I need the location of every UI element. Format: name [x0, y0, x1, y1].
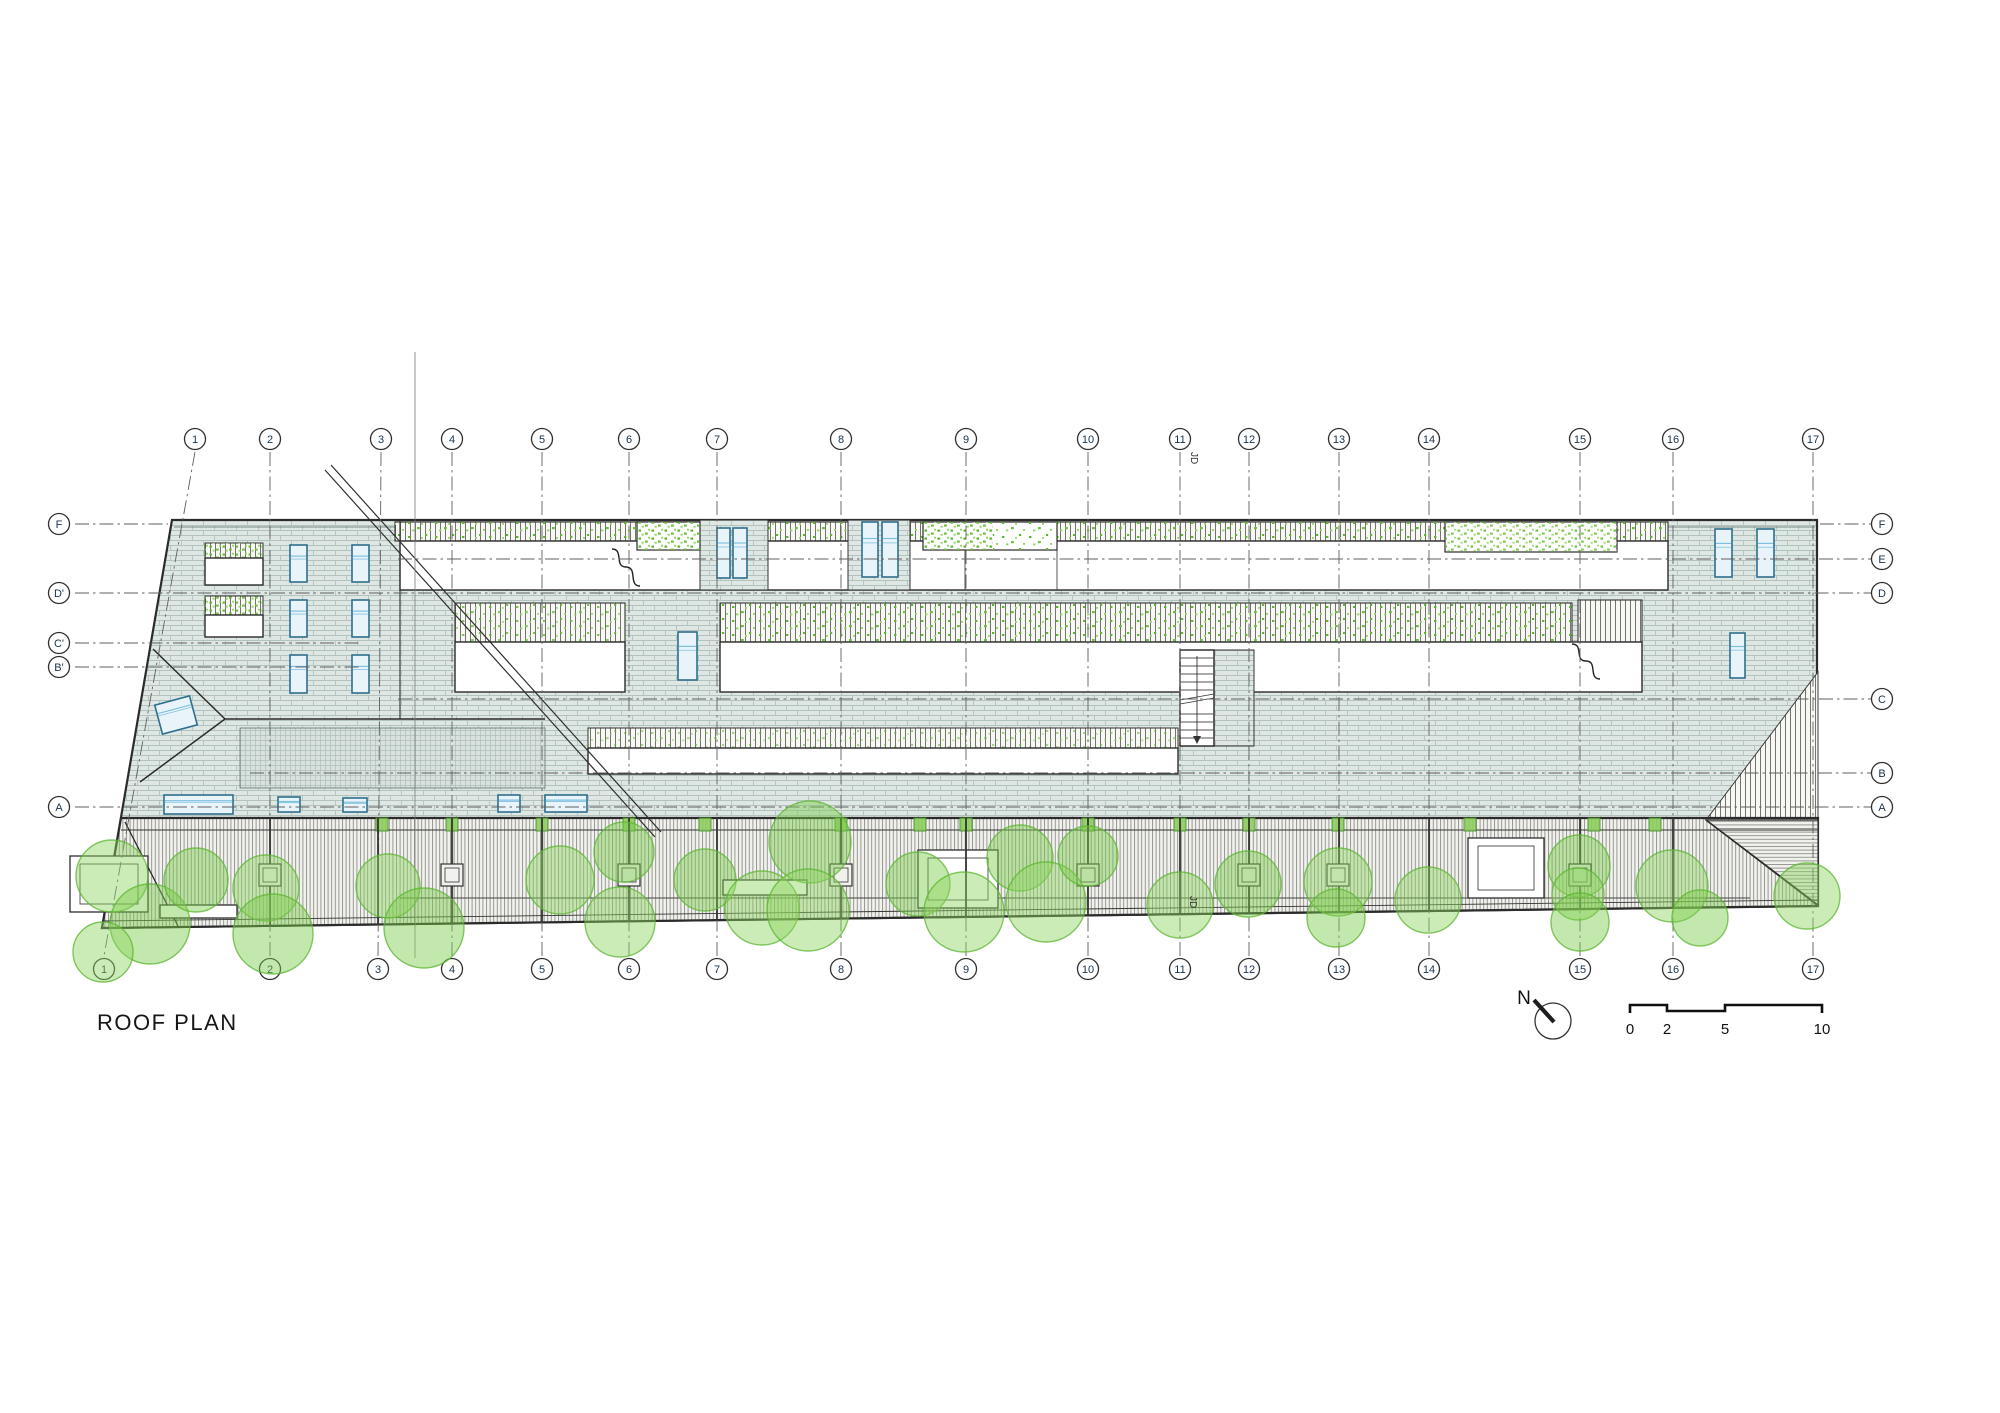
skylight-frame [498, 795, 520, 812]
grid-bubble-right-E-label: E [1878, 554, 1885, 566]
skylight [278, 797, 300, 812]
grid-bubble-left-F-label: F [56, 519, 63, 531]
grid-bubble-bottom-14-label: 14 [1423, 964, 1435, 976]
grid-bubble-left-D'-label: D' [54, 588, 64, 600]
grid-bubble-bottom-17-label: 17 [1807, 964, 1819, 976]
skylight-frame [352, 545, 369, 582]
grid-bubble-top-3-label: 3 [378, 434, 384, 446]
tree [1395, 867, 1461, 933]
skylight-frame [343, 798, 367, 812]
grid-bubble-top-15-label: 15 [1574, 434, 1586, 446]
grid-bubble-bottom-6-label: 6 [626, 964, 632, 976]
skylight-frame [352, 655, 369, 693]
skylight [733, 528, 747, 578]
skylight [352, 545, 369, 582]
tree [1307, 889, 1365, 947]
tree [526, 846, 594, 914]
grid-bubble-top-4-label: 4 [449, 434, 455, 446]
grid-bubble-right-A-label: A [1878, 802, 1886, 814]
skylight [678, 632, 697, 680]
grid-bubble-right-F-label: F [1879, 519, 1886, 531]
skylight-frame [717, 528, 730, 578]
north-arrow: N [1517, 988, 1571, 1039]
skylight [343, 798, 367, 812]
scale-bar: 02510 [1626, 1005, 1831, 1038]
skylight [352, 600, 369, 637]
skylight-frame [1715, 529, 1732, 577]
grid-bubble-bottom-4-label: 4 [449, 964, 455, 976]
skylight-frame [290, 545, 307, 582]
tree [164, 848, 228, 912]
grid-bubble-bottom-7-label: 7 [714, 964, 720, 976]
deck-planter-pad [914, 818, 926, 831]
grid-bubble-top-17-label: 17 [1807, 434, 1819, 446]
tree [1215, 851, 1281, 917]
deck-planter-pad [699, 818, 711, 831]
roof-plan-sheet: FFED'DC'B'CBAA11223344556677889910101111… [0, 0, 2000, 1413]
tree [1058, 826, 1118, 886]
grid-bubble-bottom-10-label: 10 [1082, 964, 1094, 976]
scale-label-2: 2 [1663, 1021, 1671, 1038]
stair [1180, 650, 1254, 746]
roof-plan-drawing: FFED'DC'B'CBAA11223344556677889910101111… [0, 0, 2000, 1413]
roof-patch [848, 520, 910, 590]
skylight [545, 795, 587, 812]
deck-post-box [441, 864, 463, 886]
grid-bubble-bottom-8-label: 8 [838, 964, 844, 976]
terrace-crosshatch [240, 728, 545, 788]
grid-bubble-bottom-3-label: 3 [375, 964, 381, 976]
skylight-frame [862, 522, 878, 577]
skylight-frame [352, 600, 369, 637]
tree [233, 894, 313, 974]
skylight [498, 795, 520, 812]
grid-bubble-top-14-label: 14 [1423, 434, 1435, 446]
grid-bubble-top-11-label: 11 [1174, 434, 1185, 446]
skylight [882, 522, 898, 577]
tree [1774, 863, 1840, 929]
grid-bubble-bottom-11-label: 11 [1174, 964, 1185, 976]
tree [585, 887, 655, 957]
grid-bubble-left-B'-label: B' [54, 662, 63, 674]
skylight [164, 795, 233, 814]
skylight-frame [278, 797, 300, 812]
skylight [1715, 529, 1732, 577]
grid-bubble-right-C-label: C [1878, 694, 1886, 706]
section-label-top: JD [1188, 452, 1199, 464]
skylight-frame [290, 600, 307, 637]
grid-bubble-bottom-9-label: 9 [963, 964, 969, 976]
skylight-frame [290, 655, 307, 693]
tree [767, 869, 849, 951]
grid-bubble-top-6-label: 6 [626, 434, 632, 446]
grid-bubble-left-A-label: A [55, 802, 63, 814]
grid-bubble-top-9-label: 9 [963, 434, 969, 446]
drawing-title: ROOF PLAN [97, 1010, 238, 1035]
scale-label-10: 10 [1814, 1021, 1831, 1038]
grid-bubble-bottom-5-label: 5 [539, 964, 545, 976]
grid-bubble-left-C'-label: C' [54, 638, 64, 650]
grid-bubble-top-2-label: 2 [267, 434, 273, 446]
scale-label-0: 0 [1626, 1021, 1634, 1038]
skylight-frame [733, 528, 747, 578]
grid-bubble-right-B-label: B [1878, 768, 1885, 780]
grid-bubble-bottom-15-label: 15 [1574, 964, 1586, 976]
grid-bubble-top-1-label: 1 [192, 434, 198, 446]
skylight-frame [545, 795, 587, 812]
skylight-frame [164, 795, 233, 814]
tree [1672, 890, 1728, 946]
tree [594, 822, 654, 882]
scale-bar-line [1630, 1005, 1822, 1013]
skylight-frame [882, 522, 898, 577]
grid-bubble-top-13-label: 13 [1333, 434, 1345, 446]
grid-bubble-top-10-label: 10 [1082, 434, 1094, 446]
deck-planter-pad [1588, 818, 1600, 831]
skylight [862, 522, 878, 577]
grid-bubble-right-D-label: D [1878, 588, 1886, 600]
skylight [290, 655, 307, 693]
skylight-frame [1730, 633, 1745, 678]
tree [924, 872, 1004, 952]
grid-bubble-top-16-label: 16 [1667, 434, 1679, 446]
skylight [352, 655, 369, 693]
tree [1551, 893, 1609, 951]
grid-bubble-top-12-label: 12 [1243, 434, 1255, 446]
deck-planter-pad [1464, 818, 1476, 831]
grid-bubble-bottom-13-label: 13 [1333, 964, 1345, 976]
skylight [717, 528, 730, 578]
skylight [290, 600, 307, 637]
grid-bubble-top-7-label: 7 [714, 434, 720, 446]
skylight-frame [1757, 529, 1774, 577]
skylight [1757, 529, 1774, 577]
grid-bubble-top-8-label: 8 [838, 434, 844, 446]
grid-bubble-bottom-12-label: 12 [1243, 964, 1255, 976]
skylight [1730, 633, 1745, 678]
north-label: N [1517, 988, 1531, 1009]
tree [73, 922, 133, 982]
skylight [290, 545, 307, 582]
tree [384, 888, 464, 968]
grid-bubble-top-5-label: 5 [539, 434, 545, 446]
grid-bubble-bottom-16-label: 16 [1667, 964, 1679, 976]
tree [1147, 872, 1213, 938]
scale-label-5: 5 [1721, 1021, 1729, 1038]
deck-planter-pad [1649, 818, 1661, 831]
skylight-frame [678, 632, 697, 680]
deck-planter-pad [1332, 818, 1344, 831]
section-label-bottom: JD [1187, 896, 1198, 908]
